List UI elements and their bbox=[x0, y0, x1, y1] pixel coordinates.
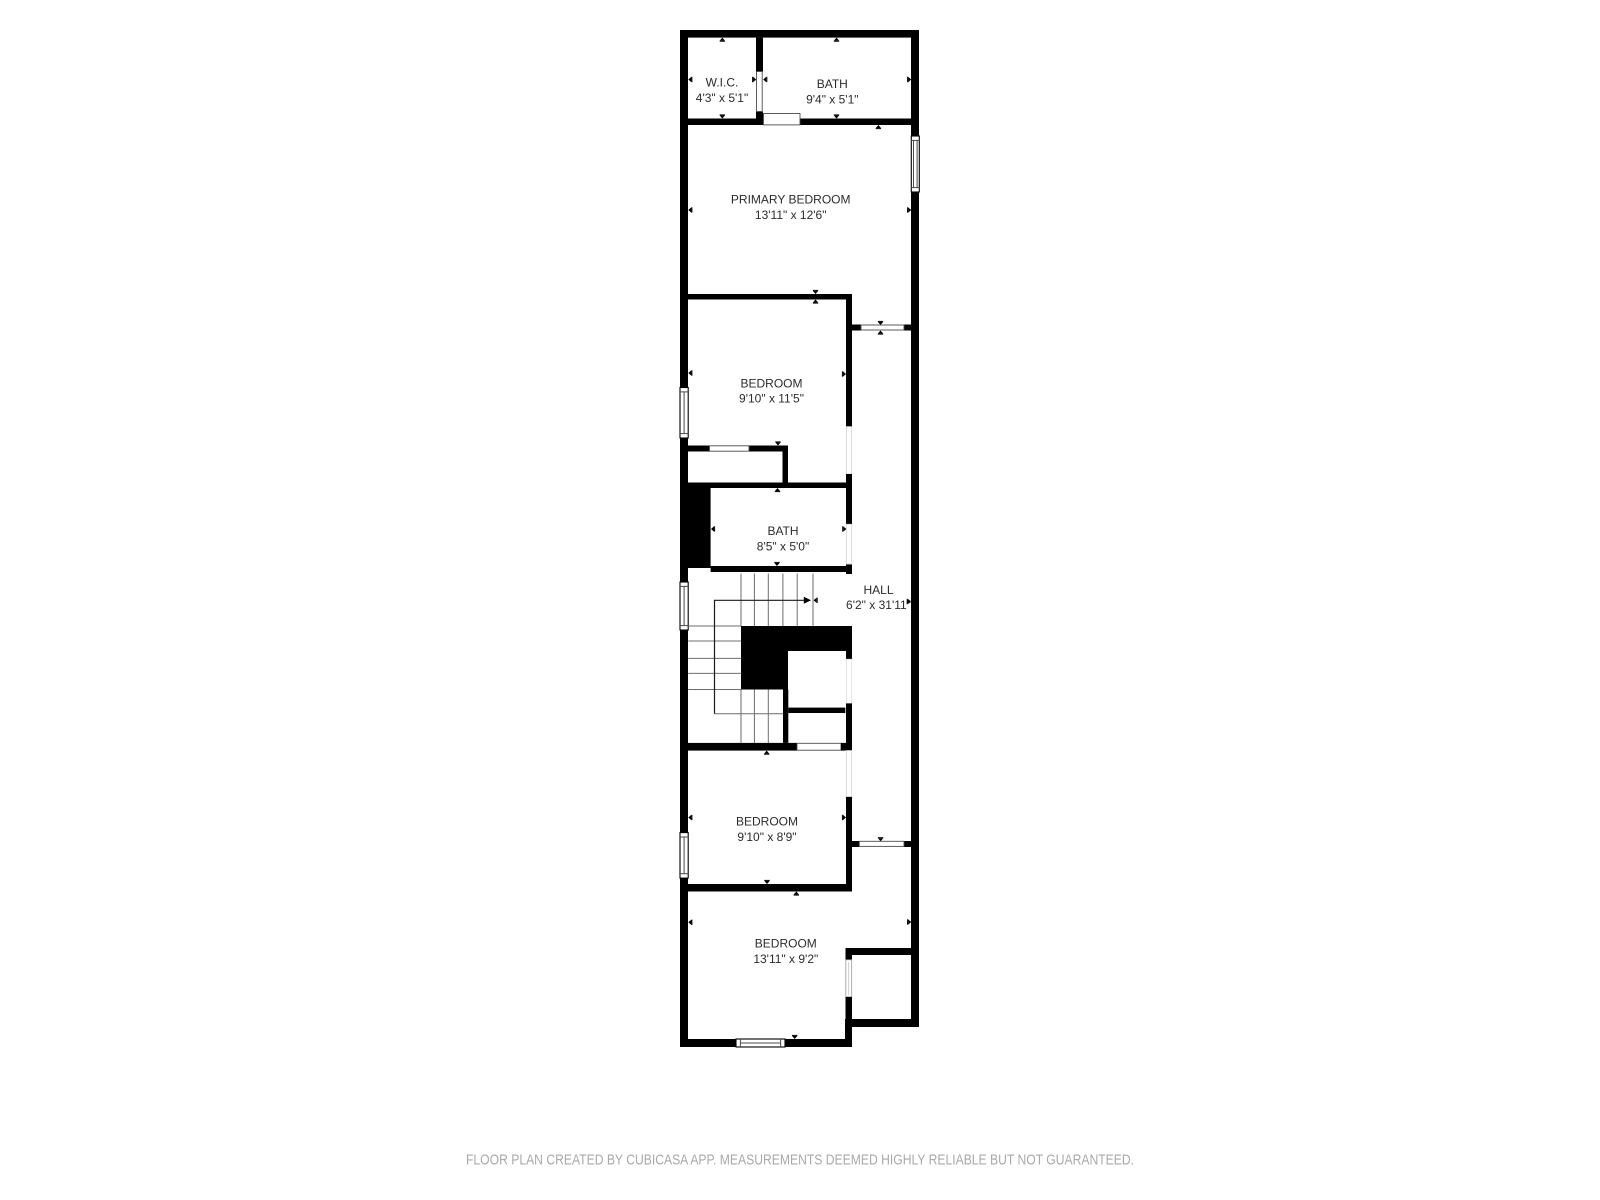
svg-text:BATH: BATH bbox=[767, 524, 798, 538]
svg-text:8'5" x 5'0": 8'5" x 5'0" bbox=[757, 539, 809, 553]
svg-text:HALL: HALL bbox=[863, 583, 893, 597]
svg-text:BATH: BATH bbox=[817, 77, 848, 91]
svg-text:BEDROOM: BEDROOM bbox=[755, 937, 817, 951]
svg-text:9'10" x 8'9": 9'10" x 8'9" bbox=[737, 830, 796, 844]
svg-text:BEDROOM: BEDROOM bbox=[736, 815, 798, 829]
svg-text:BEDROOM: BEDROOM bbox=[740, 376, 802, 390]
svg-text:FLOOR PLAN CREATED BY CUBICASA: FLOOR PLAN CREATED BY CUBICASA APP. MEAS… bbox=[466, 1153, 1134, 1169]
svg-text:PRIMARY BEDROOM: PRIMARY BEDROOM bbox=[731, 193, 851, 207]
svg-text:13'11" x 12'6": 13'11" x 12'6" bbox=[755, 208, 827, 222]
svg-text:6'2" x 31'11": 6'2" x 31'11" bbox=[846, 598, 911, 612]
svg-text:W.I.C.: W.I.C. bbox=[706, 76, 739, 90]
svg-text:4'3" x 5'1": 4'3" x 5'1" bbox=[696, 91, 748, 105]
svg-text:9'4" x 5'1": 9'4" x 5'1" bbox=[806, 92, 858, 106]
svg-text:13'11" x 9'2": 13'11" x 9'2" bbox=[753, 952, 818, 966]
svg-text:9'10" x 11'5": 9'10" x 11'5" bbox=[739, 392, 804, 406]
